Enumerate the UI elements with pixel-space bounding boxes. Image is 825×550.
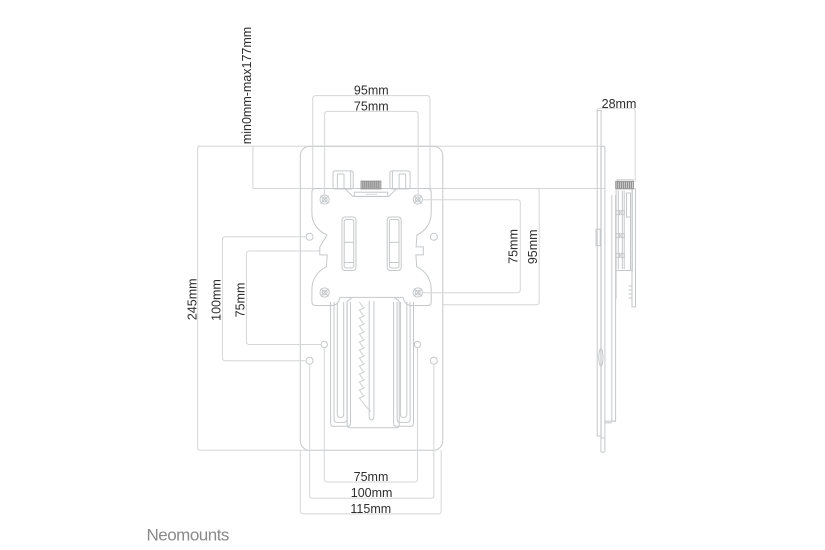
svg-text:95mm: 95mm bbox=[354, 84, 389, 98]
svg-text:Neomounts: Neomounts bbox=[147, 525, 229, 544]
svg-text:75mm: 75mm bbox=[234, 283, 248, 318]
svg-text:75mm: 75mm bbox=[506, 229, 520, 264]
svg-text:75mm: 75mm bbox=[354, 99, 389, 113]
svg-text:100mm: 100mm bbox=[210, 279, 224, 321]
svg-text:95mm: 95mm bbox=[526, 229, 540, 264]
svg-text:75mm: 75mm bbox=[354, 470, 389, 484]
svg-text:28mm: 28mm bbox=[602, 97, 637, 111]
svg-text:min0mm-max177mm: min0mm-max177mm bbox=[240, 27, 254, 144]
svg-text:245mm: 245mm bbox=[186, 278, 200, 320]
svg-text:115mm: 115mm bbox=[350, 502, 391, 516]
svg-text:100mm: 100mm bbox=[351, 486, 393, 500]
